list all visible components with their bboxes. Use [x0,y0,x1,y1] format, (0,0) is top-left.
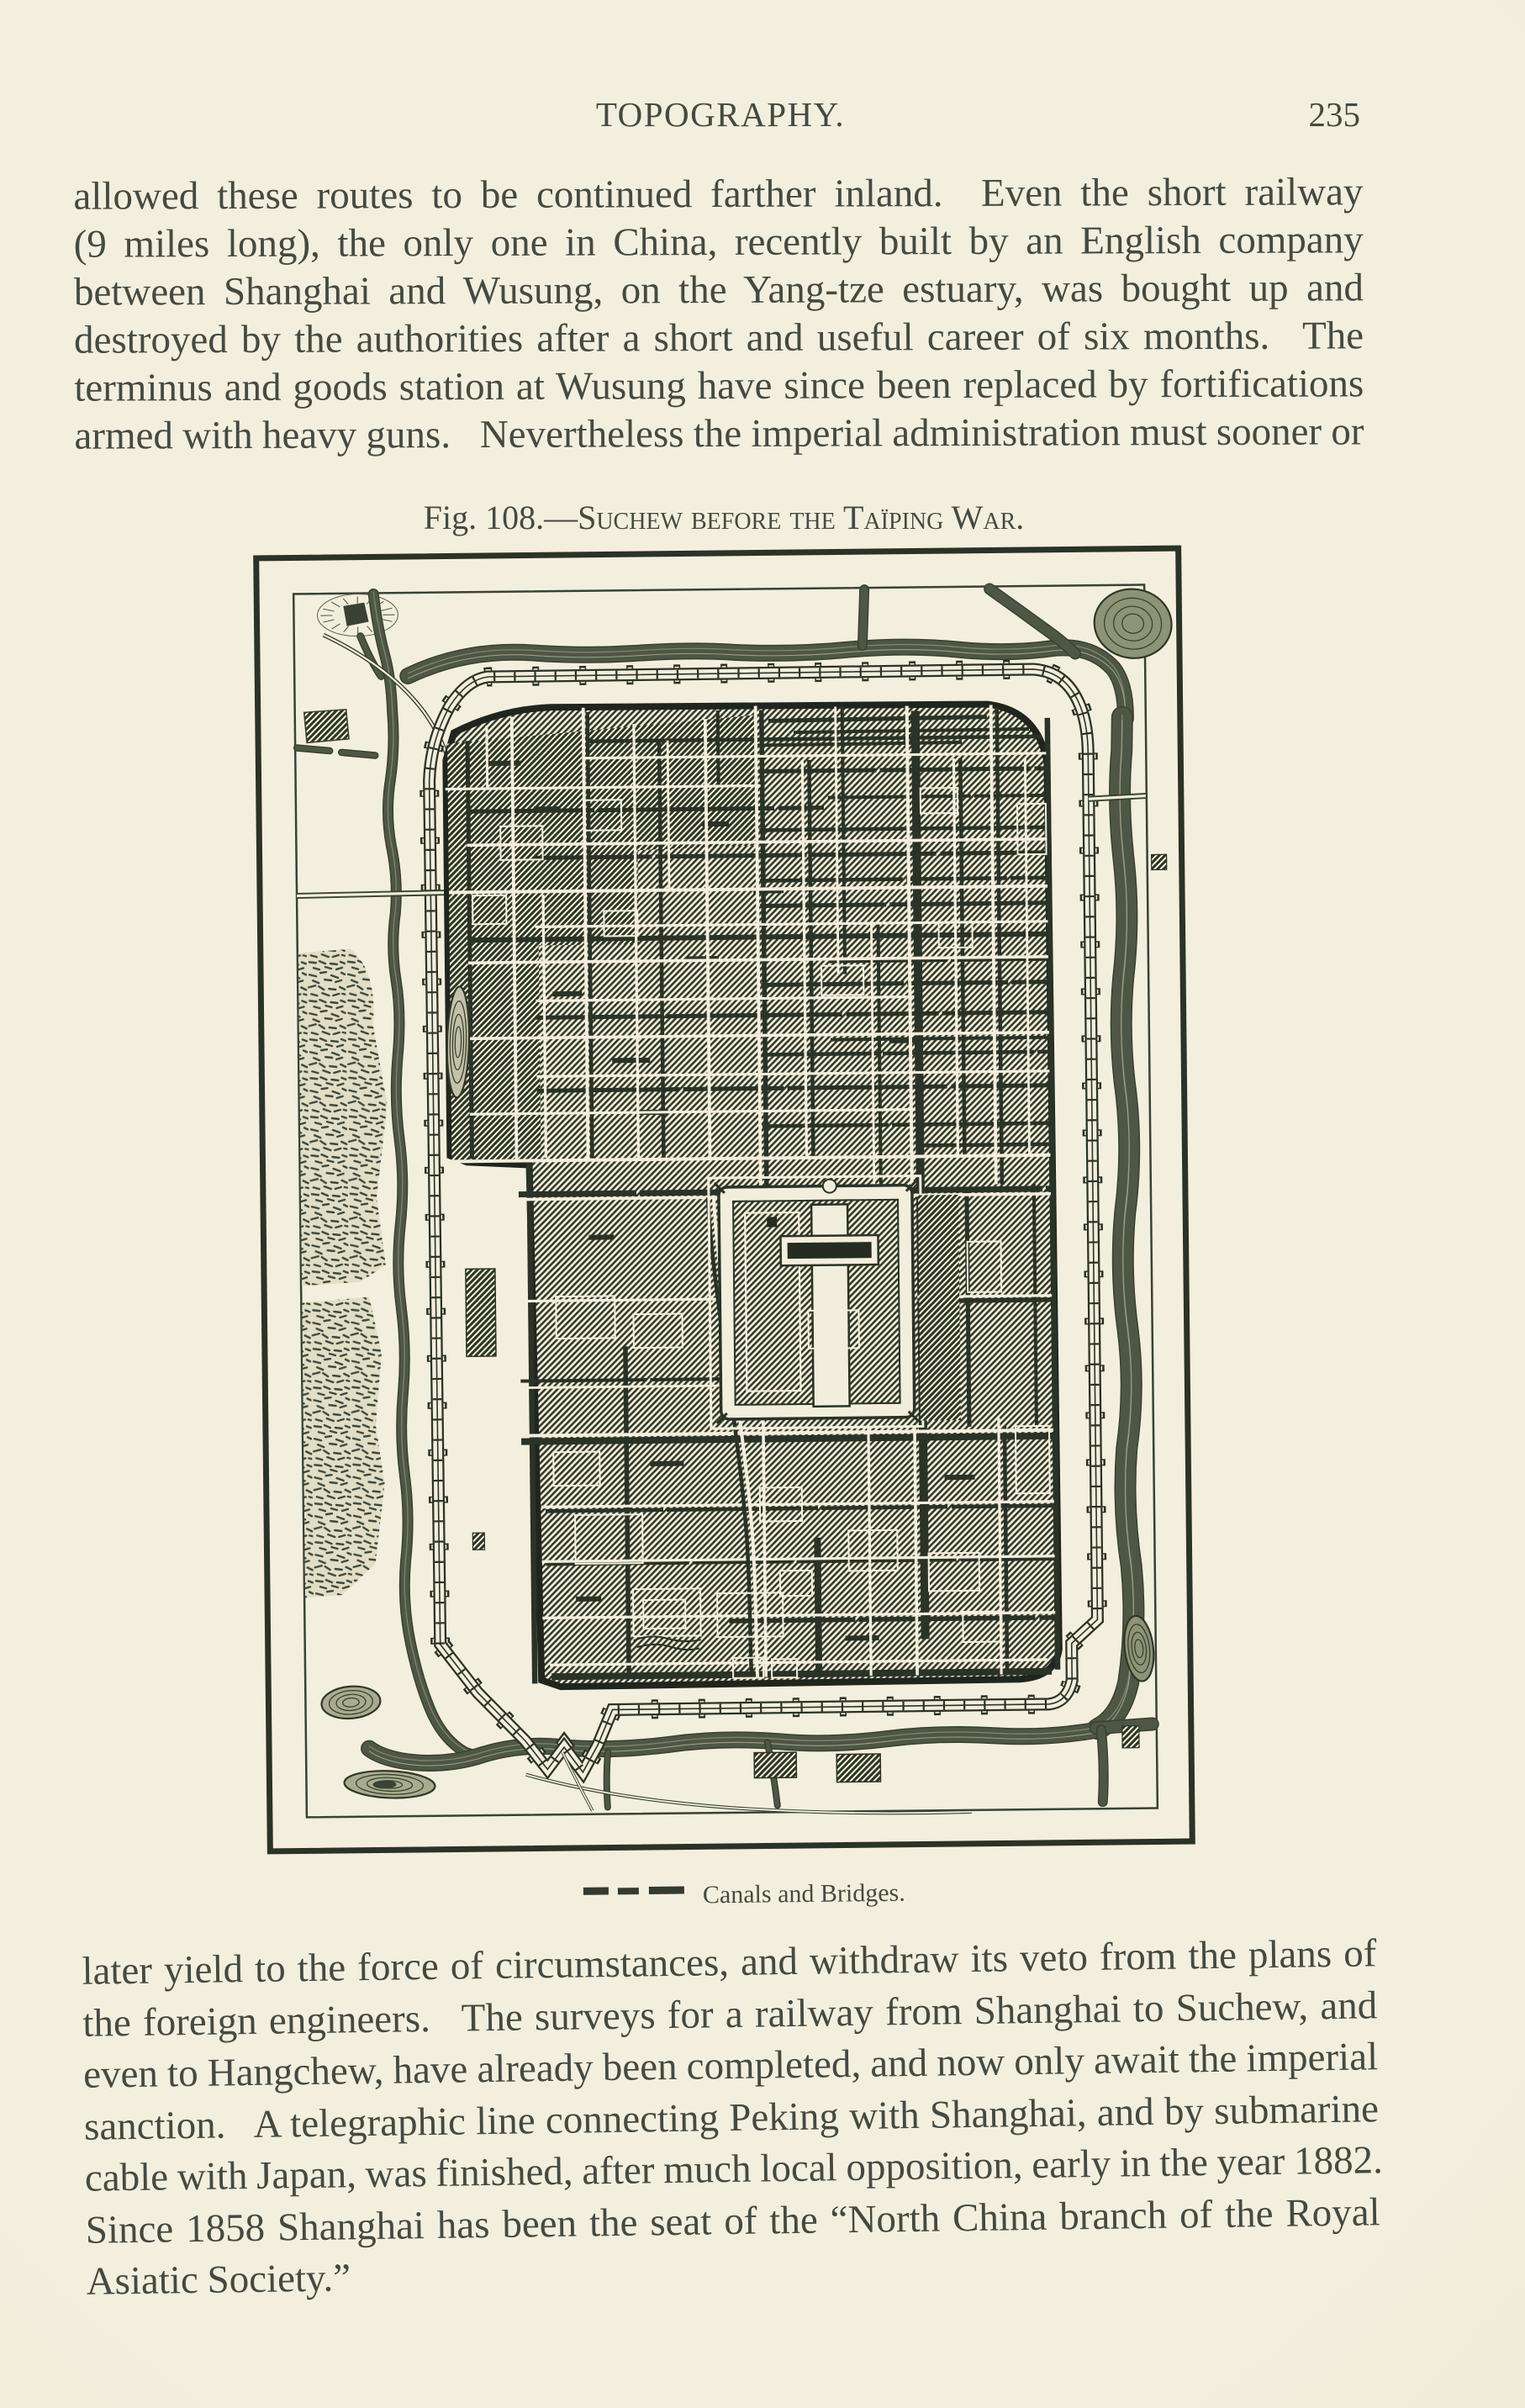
svg-text:Canals and Bridges.: Canals and Bridges. [703,1879,905,1909]
